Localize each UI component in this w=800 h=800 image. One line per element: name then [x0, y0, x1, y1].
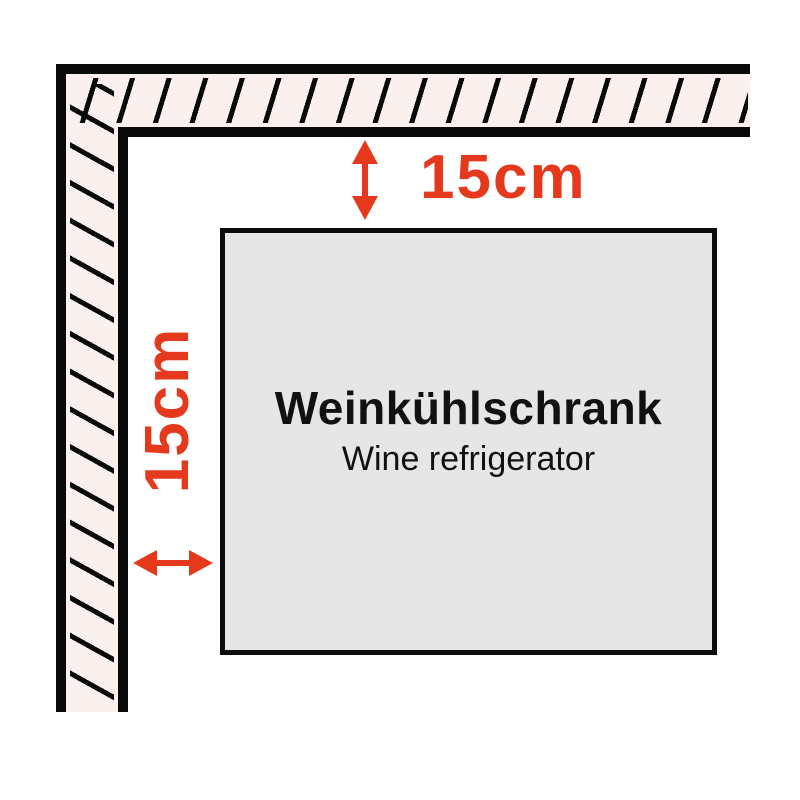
left-clearance-label: 15cm	[137, 327, 199, 494]
wine-refrigerator-labels: Weinkühlschrank Wine refrigerator	[275, 383, 663, 480]
fridge-subtitle: Wine refrigerator	[275, 439, 663, 480]
wall-top-inner-border	[118, 127, 750, 137]
wall-top-outer-border	[56, 64, 750, 74]
horizontal-double-arrow-icon	[133, 548, 213, 578]
top-clearance-label: 15cm	[420, 147, 587, 209]
wall-left-inner-border	[118, 127, 128, 712]
fridge-title: Weinkühlschrank	[275, 383, 663, 434]
wall-top-hatch	[62, 78, 748, 123]
wall-left-outer-border	[56, 64, 66, 712]
wall-left-hatch	[70, 84, 114, 708]
vertical-double-arrow-icon	[350, 140, 380, 220]
wine-refrigerator-box: Weinkühlschrank Wine refrigerator	[220, 228, 717, 655]
